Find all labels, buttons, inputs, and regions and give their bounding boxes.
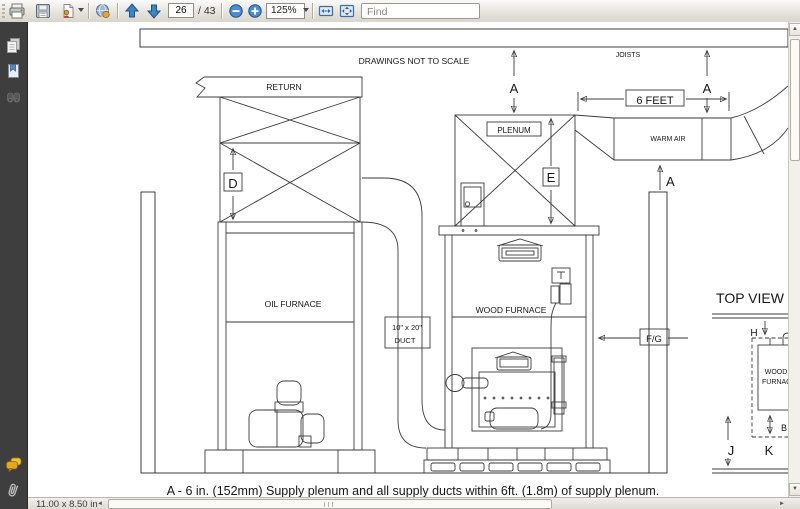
duct-size-label-line1: 10" x 20" <box>392 323 422 332</box>
dim-a-label: A <box>510 81 519 96</box>
dim-a-label: A <box>703 81 712 96</box>
door-vents <box>484 397 549 399</box>
ash-lip <box>490 408 538 429</box>
top-view: TOP VIEW WOOD FURNACE H <box>712 290 800 473</box>
vertical-scrollbar[interactable]: ▲ ▼ <box>788 22 800 497</box>
brand-badge <box>497 239 543 261</box>
horizontal-scrollbar-thumb[interactable] <box>108 499 552 509</box>
joists-label: JOISTS <box>616 52 641 59</box>
furnace-installation-diagram: DRAWINGS NOT TO SCALE JOISTS RETURN <box>0 0 800 509</box>
wood-plenum-box: PLENUM E <box>455 115 575 226</box>
dimension-a-right: A <box>703 51 712 112</box>
door-latch-plate <box>552 356 566 414</box>
brick-base <box>424 448 610 473</box>
dim-a-label: A <box>666 174 675 189</box>
top-view-title: TOP VIEW <box>716 290 785 306</box>
oil-return-filter-box <box>220 97 360 143</box>
plenum-label: PLENUM <box>497 126 531 135</box>
oil-burner <box>249 381 324 447</box>
dim-d-label: D <box>228 176 237 191</box>
scrollbar-grip <box>324 502 335 507</box>
caption-text: A - 6 in. (152mm) Supply plenum and all … <box>167 484 660 498</box>
wood-furnace-label: WOOD FURNACE <box>476 305 547 315</box>
dim-b-label: B <box>781 423 787 433</box>
drawing-note-label: DRAWINGS NOT TO SCALE <box>359 56 470 66</box>
oil-furnace: OIL FURNACE <box>205 222 375 473</box>
scroll-down-button[interactable]: ▼ <box>789 483 800 496</box>
warm-air-label: WARM AIR <box>650 136 685 143</box>
dimension-e: E <box>543 119 559 223</box>
dimension-fg: F/G <box>599 329 688 345</box>
damper-box <box>461 183 484 226</box>
horizontal-scrollbar[interactable]: ◄ ► <box>94 498 788 509</box>
dimension-j: J <box>728 417 735 465</box>
left-wall <box>141 192 155 473</box>
pdf-viewer-window: / 43 125% <box>0 0 800 509</box>
return-duct: RETURN <box>196 77 362 97</box>
dim-k-label: K <box>765 443 774 458</box>
dim-j-label: J <box>728 443 735 458</box>
top-view-wood-label: WOOD <box>765 369 788 376</box>
dim-fg-label: F/G <box>646 334 662 345</box>
furnace-door <box>446 348 562 431</box>
return-duct-label: RETURN <box>266 82 301 92</box>
dim-e-label: E <box>547 170 556 185</box>
status-bar: 11.00 x 8.50 in ◄ ► <box>28 497 800 509</box>
dim-h-label: H <box>750 328 757 339</box>
document-size-label: 11.00 x 8.50 in <box>36 499 98 509</box>
oil-furnace-base <box>205 450 375 473</box>
ash-lip-tab <box>485 412 494 421</box>
scroll-up-button[interactable]: ▲ <box>789 23 800 36</box>
door-badge <box>495 352 531 370</box>
dimension-a-left: A <box>510 51 519 112</box>
dimension-h: H <box>750 321 765 339</box>
scroll-right-button[interactable]: ► <box>776 499 788 509</box>
thermostat-control <box>551 268 571 304</box>
six-feet-label: 6 FEET <box>636 95 674 107</box>
vertical-scrollbar-thumb[interactable] <box>790 39 800 161</box>
dimension-a-duct: A <box>660 166 675 190</box>
oil-furnace-label: OIL FURNACE <box>265 299 322 309</box>
dimension-d: D <box>224 149 242 219</box>
duct-size-label-line2: DUCT <box>395 336 416 345</box>
wood-furnace: WOOD FURNACE <box>424 226 610 473</box>
scroll-left-button[interactable]: ◄ <box>94 499 106 509</box>
connecting-duct: 10" x 20" DUCT <box>362 178 445 448</box>
right-wall <box>649 192 667 473</box>
oil-plenum-box <box>220 143 360 222</box>
warm-air-duct: WARM AIR <box>575 86 788 160</box>
joist-band <box>140 29 788 47</box>
